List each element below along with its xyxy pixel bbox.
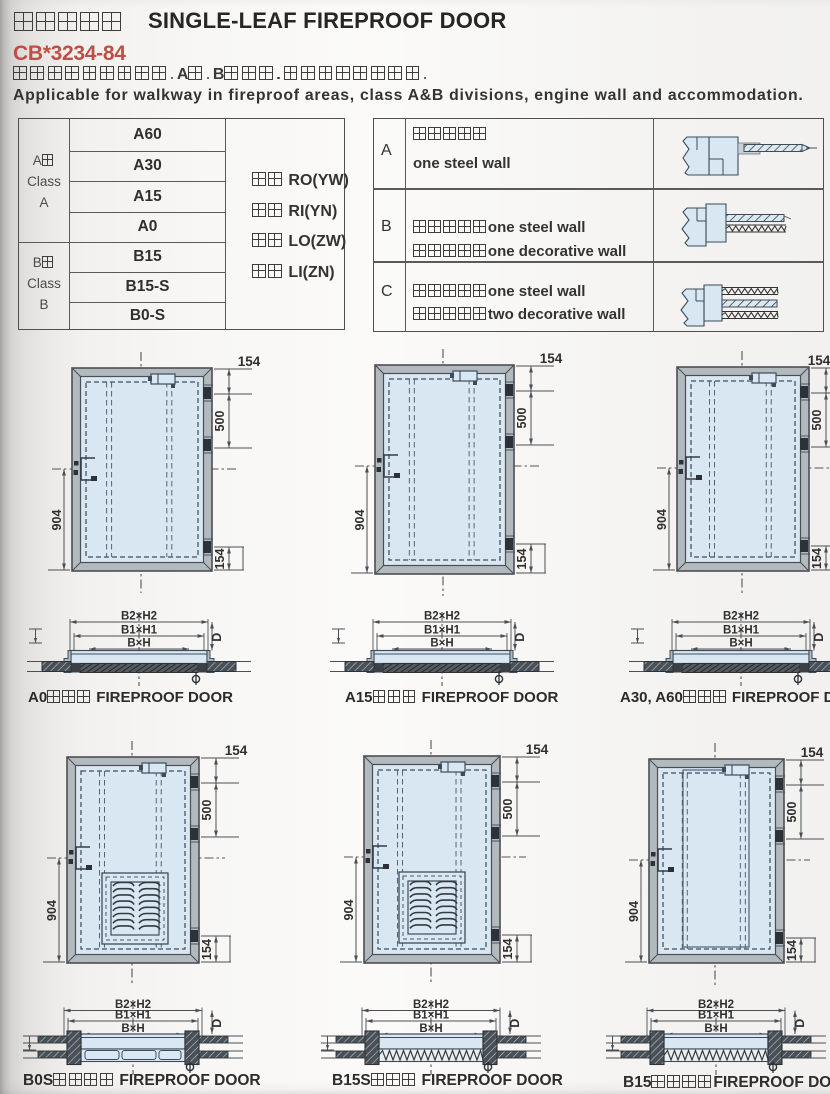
svg-text:B×H: B×H bbox=[704, 1023, 727, 1035]
svg-text:B×H: B×H bbox=[121, 1023, 144, 1035]
svg-text:D: D bbox=[513, 633, 527, 642]
svg-text:500: 500 bbox=[515, 408, 529, 429]
svg-text:154: 154 bbox=[801, 745, 824, 760]
svg-text:D: D bbox=[210, 633, 224, 642]
svg-text:D: D bbox=[210, 1019, 224, 1028]
svg-text:904: 904 bbox=[45, 900, 59, 921]
svg-text:154: 154 bbox=[200, 939, 214, 960]
svg-text:B1×H1: B1×H1 bbox=[424, 625, 461, 637]
svg-text:B2×H2: B2×H2 bbox=[723, 611, 759, 623]
svg-text:B×H: B×H bbox=[419, 1023, 442, 1035]
svg-text:B2×H2: B2×H2 bbox=[121, 611, 157, 623]
svg-text:B1×H1: B1×H1 bbox=[698, 1010, 735, 1022]
svg-text:904: 904 bbox=[50, 510, 64, 531]
svg-text:154: 154 bbox=[810, 548, 824, 569]
svg-text:154: 154 bbox=[238, 354, 261, 369]
svg-text:154: 154 bbox=[515, 549, 529, 570]
svg-text:500: 500 bbox=[501, 799, 515, 820]
svg-text:500: 500 bbox=[200, 800, 214, 821]
svg-text:B×H: B×H bbox=[430, 638, 453, 650]
svg-text:154: 154 bbox=[225, 743, 248, 758]
svg-text:500: 500 bbox=[213, 411, 227, 432]
svg-text:904: 904 bbox=[655, 509, 669, 530]
svg-text:B×H: B×H bbox=[127, 638, 150, 650]
svg-text:D: D bbox=[508, 1019, 522, 1028]
svg-text:B1×H1: B1×H1 bbox=[121, 625, 158, 637]
svg-text:154: 154 bbox=[501, 939, 515, 960]
svg-text:B×H: B×H bbox=[729, 638, 752, 650]
svg-text:154: 154 bbox=[213, 549, 227, 570]
svg-text:154: 154 bbox=[785, 940, 799, 961]
svg-text:154: 154 bbox=[540, 351, 563, 366]
svg-text:D: D bbox=[812, 633, 826, 642]
svg-text:B2×H2: B2×H2 bbox=[424, 611, 460, 623]
svg-text:904: 904 bbox=[627, 901, 641, 922]
svg-text:904: 904 bbox=[342, 900, 356, 921]
svg-text:154: 154 bbox=[808, 353, 830, 368]
svg-text:B1×H1: B1×H1 bbox=[723, 625, 760, 637]
svg-text:D: D bbox=[793, 1019, 807, 1028]
svg-text:B1×H1: B1×H1 bbox=[413, 1010, 450, 1022]
svg-text:500: 500 bbox=[785, 802, 799, 823]
svg-text:B1×H1: B1×H1 bbox=[115, 1010, 152, 1022]
svg-text:154: 154 bbox=[526, 742, 549, 757]
svg-text:500: 500 bbox=[810, 410, 824, 431]
svg-text:904: 904 bbox=[353, 510, 367, 531]
